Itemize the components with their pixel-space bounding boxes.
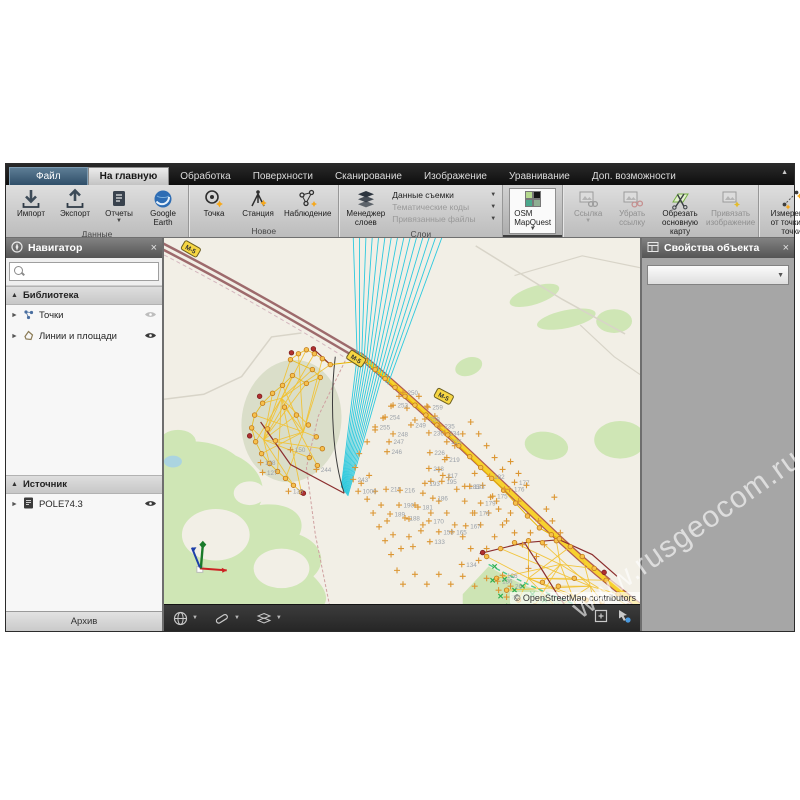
unlink-button: Убрать ссылку <box>611 187 653 237</box>
svg-text:190: 190 <box>403 503 414 510</box>
svg-text:179: 179 <box>485 501 496 508</box>
map-area: 2492352482362342472252462262192182172152… <box>164 238 640 631</box>
svg-text:175: 175 <box>497 494 508 501</box>
main-area: Навигатор × ▲Библиотека►Точки►Линии и пл… <box>6 238 794 631</box>
svg-text:244: 244 <box>321 467 332 474</box>
navigator-tree: ▲Библиотека►Точки►Линии и площади▲Источн… <box>6 286 162 611</box>
import-icon <box>20 188 42 210</box>
button-label: Точка <box>204 210 225 219</box>
tab-2[interactable]: Сканирование <box>324 168 413 185</box>
point-button[interactable]: Точка <box>193 187 235 225</box>
button-label: Станция <box>242 210 274 219</box>
ribbon-collapse-icon[interactable]: ▲ <box>781 169 788 176</box>
object-selector-combobox[interactable]: ▼ <box>647 265 789 285</box>
pan-select-button[interactable] <box>616 609 631 628</box>
ribbon-group: Измерение от точки до точкиСдвиг, поворо… <box>759 185 800 237</box>
chevron-down-icon: ▼ <box>276 616 282 621</box>
svg-text:167: 167 <box>470 523 481 530</box>
tree-item-label: POLE74.3 <box>39 499 83 510</box>
table-icon <box>647 241 659 256</box>
button-label: Менеджер слоев <box>346 210 385 228</box>
button-label: Наблюдение <box>284 210 331 219</box>
thematic-codes-dropdown: Тематические коды▼ <box>392 202 496 212</box>
osm-mapquest-button[interactable]: OSM MapQuest▼ <box>509 188 556 234</box>
layer-manager-button[interactable]: Менеджер слоев <box>343 187 388 228</box>
dropdown-label: Данные съемки <box>392 190 454 200</box>
section-header-1[interactable]: ▲Источник <box>6 475 162 494</box>
chevron-down-icon: ▼ <box>490 217 496 222</box>
svg-text:248: 248 <box>398 431 409 438</box>
svg-text:26: 26 <box>515 584 523 591</box>
svg-text:182: 182 <box>494 474 505 481</box>
tab-4[interactable]: Уравнивание <box>498 168 581 185</box>
eye-icon[interactable] <box>144 331 157 343</box>
svg-text:246: 246 <box>392 449 403 456</box>
ribbon-group: Менеджер слоевДанные съемки▼Тематические… <box>339 185 503 237</box>
ribbon-group: ТочкаСтанцияНаблюдениеНовое <box>189 185 339 237</box>
collapse-triangle-icon: ▲ <box>11 481 18 488</box>
tab-3[interactable]: Изображение <box>413 168 498 185</box>
search-row <box>6 258 162 286</box>
eye-icon[interactable] <box>144 310 157 322</box>
import-button[interactable]: Импорт <box>10 187 52 228</box>
attached-files-dropdown: Привязанные файлы▼ <box>392 214 496 224</box>
file-icon <box>23 497 34 512</box>
svg-text:195: 195 <box>446 479 457 486</box>
ribbon-group-label: Данные <box>6 228 188 237</box>
button-label: OSM MapQuest <box>514 210 551 228</box>
svg-text:153: 153 <box>443 529 454 536</box>
chevron-down-icon: ▼ <box>490 205 496 210</box>
tab-strip: ФайлНа главнуюОбработкаПоверхностиСканир… <box>6 164 794 185</box>
tree-item-label: Точки <box>39 310 64 321</box>
svg-text:136: 136 <box>502 579 513 586</box>
export-icon <box>64 188 86 210</box>
bind-image-button: Привязать изображение <box>707 187 754 237</box>
svg-text:150: 150 <box>295 447 306 454</box>
link-button: Ссылка▼ <box>567 187 609 237</box>
tree-filler <box>6 515 162 611</box>
svg-text:186: 186 <box>437 496 448 503</box>
pts-icon <box>23 309 34 323</box>
chevron-down-icon: ▼ <box>530 227 536 232</box>
svg-text:254: 254 <box>390 415 401 422</box>
close-icon[interactable]: × <box>783 242 789 254</box>
export-button[interactable]: Экспорт <box>54 187 96 228</box>
svg-text:170: 170 <box>433 518 444 525</box>
svg-text:235: 235 <box>444 423 455 430</box>
archive-bar[interactable]: Архив <box>6 611 162 631</box>
button-label: Измерение от точки до точки <box>766 210 800 237</box>
google-earth-button[interactable]: Google Earth <box>142 187 184 228</box>
svg-text:126: 126 <box>507 573 518 580</box>
collapse-triangle-icon: ▲ <box>11 292 18 299</box>
crop-basemap-button[interactable]: Обрезать основную карту <box>655 187 705 237</box>
chevron-down-icon: ▼ <box>192 616 198 621</box>
section-label: Библиотека <box>23 290 79 301</box>
svg-text:255: 255 <box>380 424 391 431</box>
svg-text:127: 127 <box>267 470 278 477</box>
svg-text:178: 178 <box>479 510 490 517</box>
ribbon: ИмпортЭкспортОтчеты▼Google EarthДанныеТо… <box>6 185 794 238</box>
button-label: Импорт <box>17 210 45 219</box>
svg-text:236: 236 <box>433 430 444 437</box>
ribbon-group-label: Новое <box>189 225 338 237</box>
section-label: Источник <box>23 479 67 490</box>
properties-panel: Свойства объекта × ▼ <box>640 238 794 631</box>
crop-icon <box>669 188 691 210</box>
map-toolbar: ▼▼▼ <box>164 604 640 631</box>
view-mode-button[interactable]: ▼ <box>173 611 198 626</box>
svg-text:247: 247 <box>394 439 405 446</box>
tree-item-pole74[interactable]: ►POLE74.3 <box>6 494 162 515</box>
tree-item-label: Линии и площади <box>39 331 117 342</box>
fit-extent-button[interactable] <box>594 609 608 628</box>
map-svg[interactable]: 2492352482362342472252462262192182172152… <box>164 238 640 604</box>
layer-visibility-button[interactable]: ▼ <box>256 611 282 626</box>
svg-text:225: 225 <box>451 439 462 446</box>
svg-text:226: 226 <box>434 450 445 457</box>
globe-icon <box>152 188 174 210</box>
tree-item-lines-areas[interactable]: ►Линии и площади <box>6 326 162 347</box>
svg-text:189: 189 <box>395 511 406 518</box>
svg-text:188: 188 <box>409 515 420 522</box>
report-icon <box>108 188 130 210</box>
ribbon-group: Ссылка▼Убрать ссылкуОбрезать основную ка… <box>563 185 759 237</box>
ribbon-group-label: Основная карта <box>503 235 562 237</box>
ribbon-group: OSM MapQuest▼Основная карта <box>503 185 563 237</box>
svg-text:177: 177 <box>519 480 530 487</box>
measure-icon <box>780 188 800 210</box>
bindimg-icon <box>720 188 742 210</box>
map-canvas[interactable]: 2492352482362342472252462262192182172152… <box>164 238 640 604</box>
tab-0[interactable]: Обработка <box>169 168 241 185</box>
compass-icon <box>11 241 23 256</box>
svg-text:250: 250 <box>407 390 418 397</box>
svg-text:249: 249 <box>415 422 426 429</box>
layers-icon <box>355 188 377 210</box>
navigator-header: Навигатор × <box>6 238 162 258</box>
ribbon-group-label: Слои <box>339 228 502 237</box>
chevron-down-icon: ▼ <box>234 616 240 621</box>
station-button[interactable]: Станция <box>237 187 279 225</box>
navigator-panel: Навигатор × ▲Библиотека►Точки►Линии и пл… <box>6 238 164 631</box>
button-label: Привязать изображение <box>706 210 755 228</box>
svg-text:193: 193 <box>429 481 440 488</box>
button-label: Экспорт <box>60 210 90 219</box>
svg-text:135: 135 <box>293 489 304 496</box>
chevron-down-icon: ▼ <box>116 219 122 224</box>
dropdown-label: Привязанные файлы <box>392 214 475 224</box>
osm-icon <box>525 191 541 210</box>
observation-button[interactable]: Наблюдение <box>281 187 334 225</box>
point-icon <box>203 188 225 210</box>
button-label: Google Earth <box>145 210 181 228</box>
section-header-0[interactable]: ▲Библиотека <box>6 286 162 305</box>
chevron-down-icon: ▼ <box>585 219 591 224</box>
svg-text:134: 134 <box>466 562 477 569</box>
expand-arrow-icon[interactable]: ► <box>11 333 18 340</box>
svg-text:181: 181 <box>422 505 433 512</box>
svg-text:219: 219 <box>449 457 460 464</box>
properties-header: Свойства объекта × <box>642 238 794 258</box>
svg-text:183: 183 <box>474 484 485 491</box>
measure-point-to-point-button[interactable]: Измерение от точки до точки <box>763 187 800 237</box>
ribbon-group: ИмпортЭкспортОтчеты▼Google EarthДанные <box>6 185 189 237</box>
svg-text:253: 253 <box>398 403 409 410</box>
button-label: Убрать ссылку <box>614 210 650 228</box>
tab-file[interactable]: Файл <box>9 167 88 185</box>
tab-active[interactable]: На главную <box>88 167 170 185</box>
survey-data-dropdown[interactable]: Данные съемки▼ <box>392 190 496 200</box>
expand-arrow-icon[interactable]: ► <box>11 312 18 319</box>
svg-text:234: 234 <box>449 430 460 437</box>
link-icon <box>577 188 599 210</box>
svg-text:216: 216 <box>404 488 415 495</box>
chevron-down-icon: ▼ <box>777 273 784 278</box>
unlink-icon <box>621 188 643 210</box>
properties-title: Свойства объекта <box>664 242 759 254</box>
svg-text:218: 218 <box>433 466 444 473</box>
close-icon[interactable]: × <box>151 242 157 254</box>
svg-text:133: 133 <box>434 539 445 546</box>
chevron-down-icon: ▼ <box>490 193 496 198</box>
svg-text:243: 243 <box>358 477 369 484</box>
tree-filler <box>6 347 162 475</box>
svg-text:1000: 1000 <box>363 489 377 496</box>
archive-label: Архив <box>71 616 98 627</box>
edit-tool-button[interactable]: ▼ <box>214 611 240 626</box>
svg-text:128: 128 <box>265 460 276 467</box>
station-icon <box>247 188 269 210</box>
navigator-title: Навигатор <box>28 242 82 254</box>
svg-text:259: 259 <box>432 405 443 412</box>
lines-icon <box>23 330 34 344</box>
tab-5[interactable]: Доп. возможности <box>581 168 687 185</box>
tree-item-points[interactable]: ►Точки <box>6 305 162 326</box>
search-icon <box>14 266 23 275</box>
search-input[interactable] <box>9 262 159 281</box>
svg-text:258: 258 <box>429 417 440 424</box>
svg-text:165: 165 <box>456 529 467 536</box>
map-attribution: © OpenStreetMap contributors <box>510 592 640 604</box>
tab-1[interactable]: Поверхности <box>242 168 324 185</box>
app-window: ФайлНа главнуюОбработкаПоверхностиСканир… <box>5 163 795 632</box>
expand-arrow-icon[interactable]: ► <box>11 501 18 508</box>
button-label: Обрезать основную карту <box>658 210 702 237</box>
svg-text:176: 176 <box>514 487 525 494</box>
observation-icon <box>297 188 319 210</box>
reports-button[interactable]: Отчеты▼ <box>98 187 140 228</box>
dropdown-label: Тематические коды <box>392 202 469 212</box>
eye-icon[interactable] <box>144 499 157 511</box>
